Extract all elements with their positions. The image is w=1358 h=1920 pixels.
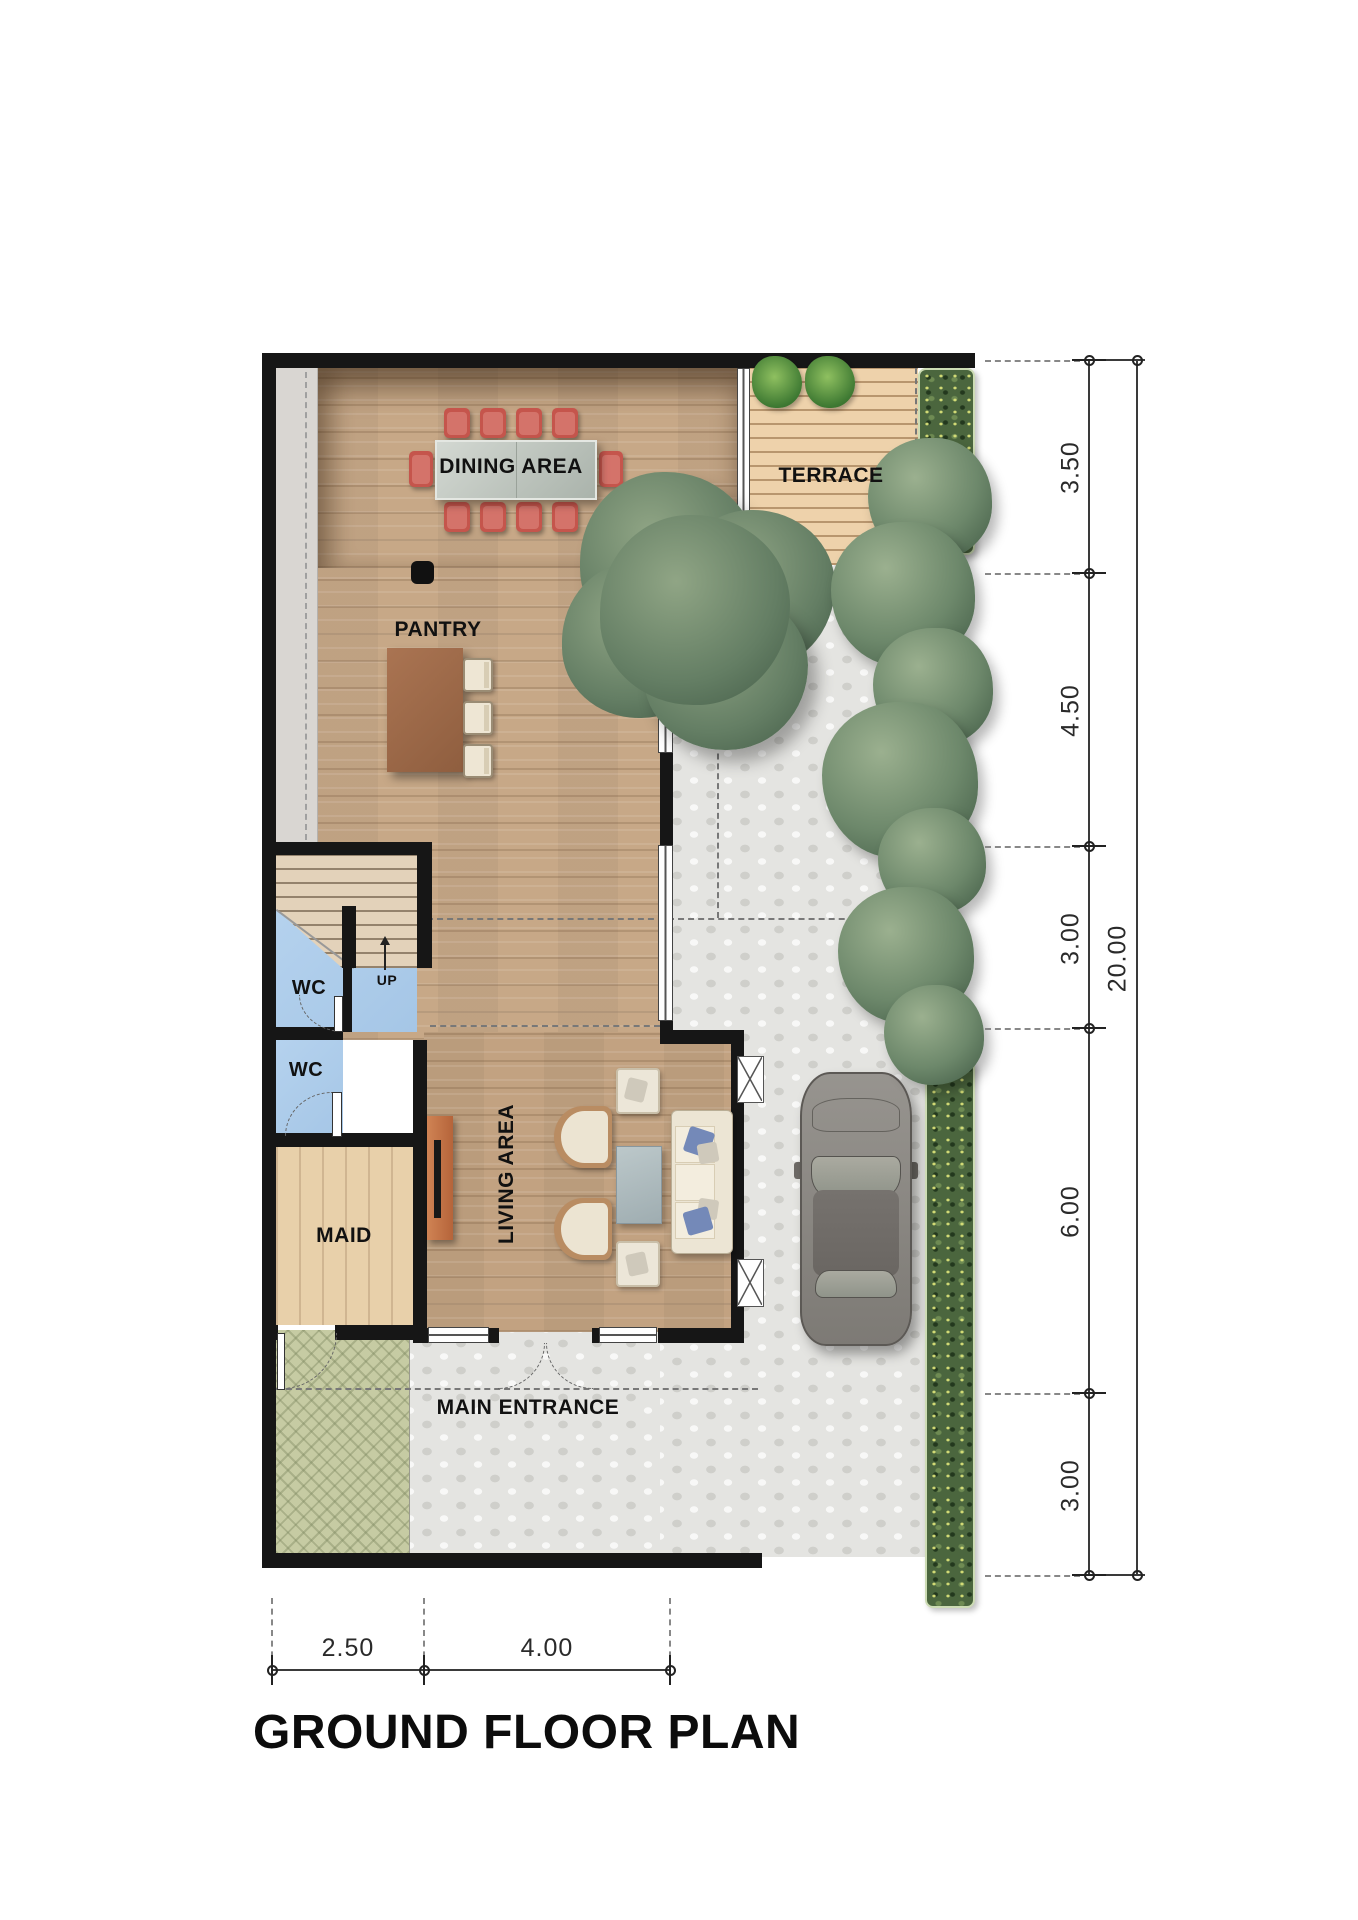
wc-upper-door bbox=[334, 996, 343, 1032]
upper-floor-outline-dashed bbox=[430, 1025, 660, 1027]
tv-console bbox=[427, 1116, 453, 1240]
stair-up-arrowhead bbox=[380, 936, 390, 945]
bay-window-symbol bbox=[737, 1259, 764, 1307]
tv-icon bbox=[434, 1140, 441, 1218]
dimension-tick-circle bbox=[419, 1665, 430, 1676]
living-area-label: LIVING AREA bbox=[495, 1084, 517, 1264]
wall-bottom bbox=[262, 1553, 762, 1568]
shrub bbox=[884, 985, 984, 1085]
dimension-tick-circle bbox=[1084, 1388, 1095, 1399]
stair-up-arrow bbox=[384, 944, 386, 970]
pillow-icon bbox=[696, 1141, 719, 1164]
dimension-tick-circle bbox=[1084, 1570, 1095, 1581]
wall-wc1-east bbox=[343, 968, 352, 1032]
dimension-total-value: 20.00 bbox=[1104, 917, 1133, 1001]
terrace-label: TERRACE bbox=[761, 464, 901, 488]
dimension-tick-circle bbox=[1132, 1570, 1143, 1581]
left-wall-strip bbox=[276, 368, 318, 844]
wall-step-b bbox=[660, 1030, 744, 1044]
dimension-value: 2.50 bbox=[313, 1634, 383, 1663]
side-chair bbox=[616, 1241, 660, 1287]
window-south-1 bbox=[428, 1327, 489, 1343]
maid-label: MAID bbox=[289, 1224, 399, 1248]
dimension-line-bottom bbox=[272, 1669, 670, 1671]
wall-stair-north bbox=[276, 842, 432, 855]
extension-line bbox=[985, 1393, 1080, 1395]
dimension-value: 3.00 bbox=[1057, 904, 1086, 974]
dimension-tick-circle bbox=[1132, 355, 1143, 366]
pillow-icon bbox=[625, 1251, 649, 1277]
dimension-tick-circle bbox=[1084, 1023, 1095, 1034]
dining-chair bbox=[444, 502, 470, 532]
dimension-tick-circle bbox=[1084, 355, 1095, 366]
side-chair bbox=[616, 1068, 660, 1114]
terrace-plant-icon bbox=[752, 356, 802, 408]
dimension-value: 4.50 bbox=[1057, 676, 1086, 746]
wall-maid-south bbox=[335, 1325, 413, 1340]
extension-line bbox=[985, 846, 1080, 848]
dining-chair bbox=[552, 408, 578, 438]
dimension-tick-circle bbox=[267, 1665, 278, 1676]
wall-south bbox=[658, 1328, 744, 1343]
carport-door bbox=[277, 1333, 285, 1390]
sofa-seat bbox=[675, 1164, 715, 1201]
wc-lower-door bbox=[332, 1092, 342, 1137]
wc-upper-label: WC bbox=[284, 977, 334, 1000]
wall-maid-south bbox=[262, 1325, 278, 1340]
pantry-stool bbox=[463, 658, 493, 692]
extension-line bbox=[985, 1028, 1080, 1030]
structural-column bbox=[411, 561, 434, 584]
stairs-up-label: UP bbox=[372, 972, 402, 988]
extension-line bbox=[985, 360, 1080, 362]
dimension-value: 4.00 bbox=[512, 1634, 582, 1663]
dining-chair bbox=[516, 408, 542, 438]
dimension-tick-circle bbox=[1084, 568, 1095, 579]
stair-rail-wall bbox=[342, 906, 356, 968]
dimension-tick-circle bbox=[1084, 841, 1095, 852]
armchair bbox=[554, 1198, 612, 1260]
dining-area-label: DINING AREA bbox=[420, 455, 602, 479]
pillow-icon bbox=[624, 1077, 649, 1103]
dining-chair bbox=[480, 408, 506, 438]
pantry-counter bbox=[387, 648, 463, 772]
car-hood-line bbox=[812, 1098, 900, 1132]
dimension-value: 3.00 bbox=[1057, 1451, 1086, 1521]
dining-chair bbox=[599, 451, 623, 487]
dining-chair bbox=[480, 502, 506, 532]
dimension-value: 6.00 bbox=[1057, 1177, 1086, 1247]
dimension-line-total bbox=[1136, 360, 1138, 1575]
dining-chair bbox=[516, 502, 542, 532]
wall-south bbox=[489, 1328, 499, 1343]
page-title: GROUND FLOOR PLAN bbox=[253, 1705, 800, 1760]
armchair bbox=[554, 1106, 612, 1168]
car-roof bbox=[813, 1190, 899, 1276]
window-east-2 bbox=[658, 845, 673, 1021]
terrace-plant-icon bbox=[805, 356, 855, 408]
coffee-table bbox=[616, 1146, 662, 1224]
sofa bbox=[671, 1110, 733, 1254]
car bbox=[798, 1072, 914, 1346]
wc-lower-label: WC bbox=[281, 1059, 331, 1082]
wall-strip-dashed-line bbox=[305, 372, 307, 840]
car-rear-window bbox=[815, 1270, 897, 1298]
window-south-2 bbox=[599, 1327, 657, 1343]
wall-east bbox=[660, 753, 673, 845]
extension-line bbox=[985, 573, 1080, 575]
main-entrance-label: MAIN ENTRANCE bbox=[428, 1396, 628, 1420]
pantry-label: PANTRY bbox=[383, 618, 493, 642]
tree-canopy bbox=[600, 515, 790, 705]
dimension-tick-circle bbox=[665, 1665, 676, 1676]
floor-plan-canvas: DINING AREA TERRACE PANTRY WC WC MAID LI… bbox=[0, 0, 1358, 1920]
entrance-canopy-dashed bbox=[276, 1388, 758, 1390]
car-body bbox=[800, 1072, 912, 1346]
pantry-stool bbox=[463, 744, 493, 778]
dining-chair bbox=[444, 408, 470, 438]
wall-maid-east bbox=[413, 1040, 427, 1340]
flower-hedge-bottom bbox=[925, 1060, 975, 1608]
pantry-stool bbox=[463, 701, 493, 735]
wall-stair-east bbox=[417, 842, 432, 968]
wall-left bbox=[262, 353, 276, 1568]
wall-top bbox=[262, 353, 975, 368]
dimension-value: 3.50 bbox=[1057, 433, 1086, 503]
dining-chair bbox=[552, 502, 578, 532]
extension-line bbox=[985, 1575, 1080, 1577]
bay-window-symbol bbox=[737, 1056, 764, 1103]
